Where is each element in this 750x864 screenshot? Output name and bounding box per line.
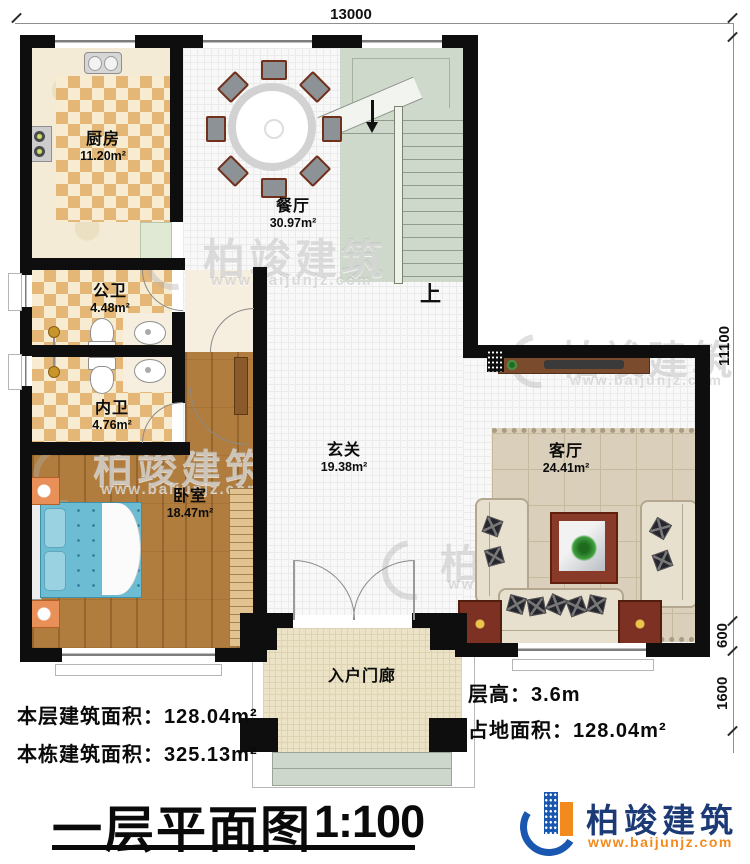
stair-up-label: 上 <box>420 278 441 308</box>
room-label-public-bath: 公卫 4.48m² <box>90 283 130 315</box>
dining-chair <box>206 116 226 142</box>
wall <box>20 345 185 357</box>
window-sill <box>512 659 654 671</box>
nightstand <box>28 477 60 505</box>
column-hatched <box>487 350 504 372</box>
tv-icon <box>544 360 624 369</box>
floor-plan: 上 柏竣建筑 www.baijunjz.com 柏竣建筑 www.baijunj… <box>0 0 750 864</box>
stair-arrow-stem <box>371 100 374 122</box>
dining-table-center <box>264 119 284 139</box>
room-label-bedroom: 卧室 18.47m² <box>167 488 214 520</box>
sofa-back-line <box>502 630 618 631</box>
sink-bowl <box>104 56 118 71</box>
wall <box>253 267 267 648</box>
plant-icon <box>507 360 517 370</box>
room-label-kitchen: 厨房 11.20m² <box>80 131 126 163</box>
title-underline <box>52 845 415 850</box>
towel-knob <box>48 366 60 378</box>
room-label-living: 客厅 24.41m² <box>543 443 590 475</box>
wall <box>172 357 185 403</box>
sofa-pillow <box>586 594 606 614</box>
window-sill <box>55 664 222 676</box>
dim-tick <box>727 13 738 24</box>
dining-table <box>228 83 316 171</box>
dining-chair <box>322 116 342 142</box>
porch-steps <box>272 752 452 786</box>
dimension-line-right <box>733 23 734 753</box>
wall <box>170 48 183 222</box>
page-title: 一层平面图 <box>52 790 312 862</box>
window <box>362 35 442 48</box>
dim-top-width: 13000 <box>330 6 372 23</box>
porch-column <box>429 718 467 752</box>
room-label-foyer: 玄关 19.38m² <box>321 442 368 474</box>
scale-label: 1:100 <box>314 796 424 848</box>
window-sill <box>8 354 22 390</box>
towel-knob <box>48 326 60 338</box>
wall <box>20 258 185 270</box>
end-table <box>618 600 662 648</box>
sink-drain <box>145 367 151 373</box>
dim-tick <box>11 13 22 24</box>
room-label-porch: 入户门廊 <box>328 668 396 686</box>
wall <box>253 613 293 628</box>
wall <box>463 35 478 355</box>
nightstand <box>28 600 60 628</box>
kitchen-sink <box>84 52 122 74</box>
pillow <box>44 551 66 591</box>
stair-treads <box>401 108 463 282</box>
dim-right-height: 11100 <box>716 326 733 366</box>
kitchen-door-mat <box>140 222 172 262</box>
burner <box>34 131 45 142</box>
dimension-line-top <box>15 23 733 24</box>
toilet <box>90 366 114 394</box>
sink-drain <box>145 329 151 335</box>
sofa-pillow <box>527 597 547 617</box>
stair-handrail <box>394 106 403 284</box>
sofa-back-line <box>682 504 683 600</box>
room-label-dining: 餐厅 30.97m² <box>270 198 317 230</box>
storey-height-text: 层高：3.6m <box>468 678 581 707</box>
footprint-area-text: 占地面积：128.04m² <box>468 714 667 743</box>
window <box>203 35 312 48</box>
tv-cabinet <box>498 357 650 374</box>
window <box>62 648 215 662</box>
window <box>55 35 135 48</box>
logo-building-icon <box>560 802 573 836</box>
coffee-table <box>550 512 618 584</box>
wall <box>20 442 190 455</box>
floor-area-text: 本层建筑面积：128.04m² <box>17 700 258 729</box>
burner <box>34 146 45 157</box>
bathroom-sink <box>134 359 166 383</box>
pillow <box>44 508 66 548</box>
dining-chair <box>261 178 287 198</box>
logo-website: www.baijunjz.com <box>588 834 733 850</box>
dim-bay-depth: 600 <box>714 623 731 648</box>
sink-bowl <box>88 56 102 71</box>
logo-building-icon <box>544 792 558 834</box>
bathroom-sink <box>134 321 166 345</box>
window-sill <box>8 273 22 311</box>
plant-icon <box>571 535 597 561</box>
logo: 柏竣建筑 www.baijunjz.com <box>520 792 748 854</box>
dining-chair <box>261 60 287 80</box>
window <box>518 643 646 657</box>
stair-arrow-icon <box>366 122 378 133</box>
room-label-inner-bath: 内卫 4.76m² <box>92 400 132 432</box>
wall <box>695 345 710 657</box>
building-area-text: 本栋建筑面积：325.13m² <box>17 738 258 767</box>
dim-porch-depth: 1600 <box>714 677 731 710</box>
